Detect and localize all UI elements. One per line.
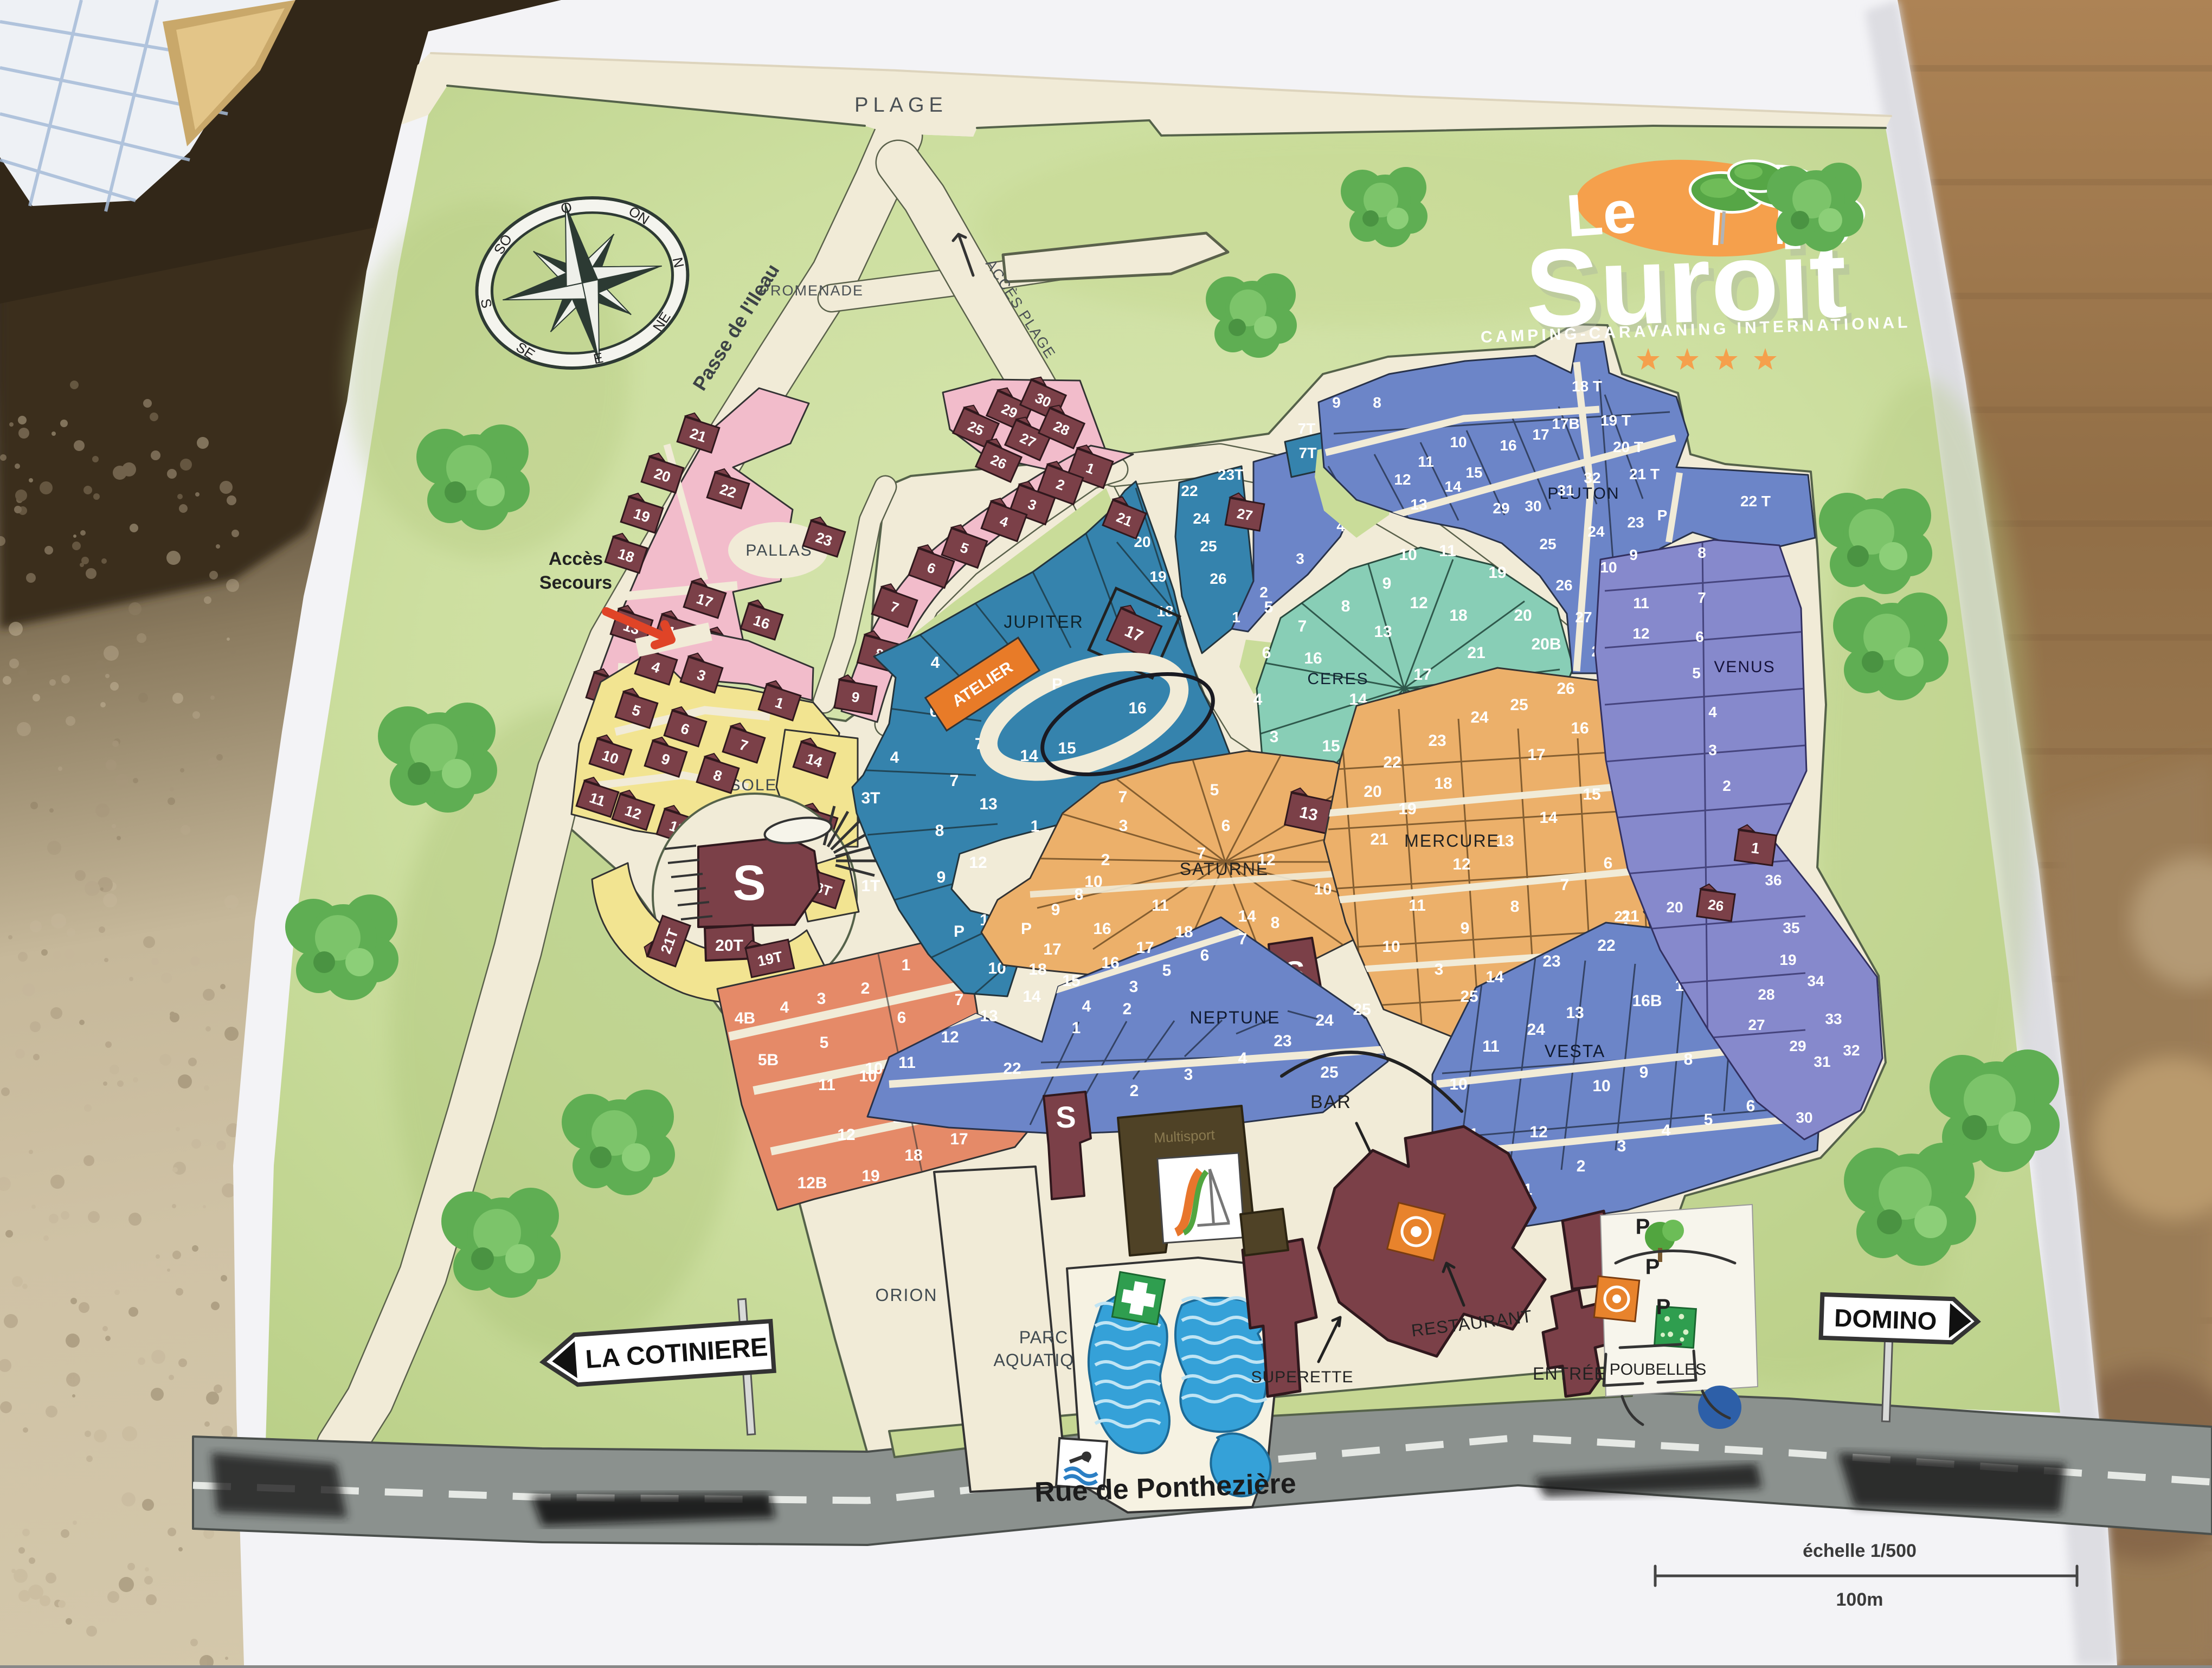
svg-text:4: 4 <box>890 749 899 767</box>
svg-text:24: 24 <box>1315 1012 1334 1029</box>
svg-text:35: 35 <box>1783 919 1799 936</box>
svg-text:5B: 5B <box>758 1051 779 1069</box>
svg-text:3T: 3T <box>861 789 880 807</box>
svg-text:3: 3 <box>1296 550 1304 567</box>
svg-text:22: 22 <box>1181 482 1198 499</box>
svg-text:21 T: 21 T <box>1629 466 1660 482</box>
svg-text:16: 16 <box>1101 954 1119 972</box>
svg-text:9: 9 <box>1382 575 1392 593</box>
svg-text:11: 11 <box>898 1054 916 1072</box>
svg-text:13: 13 <box>980 1007 998 1025</box>
svg-text:10: 10 <box>1450 434 1467 450</box>
svg-text:31: 31 <box>1557 482 1574 499</box>
svg-text:P: P <box>1645 1255 1660 1279</box>
svg-text:23: 23 <box>1274 1032 1291 1050</box>
svg-text:Multisport: Multisport <box>1153 1126 1216 1146</box>
svg-text:31: 31 <box>1814 1053 1830 1070</box>
svg-text:P: P <box>954 923 964 941</box>
svg-text:4: 4 <box>1708 704 1717 720</box>
svg-text:1: 1 <box>902 956 911 974</box>
svg-text:8: 8 <box>1075 886 1084 904</box>
svg-text:34: 34 <box>1807 973 1824 989</box>
svg-text:7: 7 <box>1118 788 1128 806</box>
svg-text:10: 10 <box>1382 938 1400 956</box>
svg-text:10: 10 <box>1449 1075 1467 1093</box>
svg-text:27: 27 <box>1575 609 1592 626</box>
svg-text:14: 14 <box>1238 907 1256 925</box>
svg-text:S: S <box>732 855 766 911</box>
svg-text:19: 19 <box>1398 800 1416 818</box>
svg-text:10: 10 <box>1399 546 1417 564</box>
svg-text:12: 12 <box>1632 625 1649 642</box>
svg-text:9: 9 <box>937 868 946 886</box>
svg-text:BAR: BAR <box>1310 1092 1352 1112</box>
svg-text:15: 15 <box>1058 739 1076 757</box>
svg-text:19: 19 <box>1149 568 1166 585</box>
svg-text:18: 18 <box>904 1147 922 1164</box>
svg-text:échelle 1/500: échelle 1/500 <box>1803 1541 1917 1561</box>
svg-text:VENUS: VENUS <box>1714 658 1775 676</box>
svg-text:DOMINO: DOMINO <box>1834 1304 1937 1336</box>
svg-text:7T: 7T <box>1298 420 1316 437</box>
svg-text:20 T: 20 T <box>1613 439 1643 455</box>
svg-text:1: 1 <box>1072 1019 1081 1037</box>
svg-text:20T: 20T <box>715 937 743 955</box>
svg-text:16B: 16B <box>1632 992 1662 1010</box>
svg-text:13: 13 <box>1374 623 1392 641</box>
svg-text:3: 3 <box>1119 817 1128 835</box>
svg-text:23: 23 <box>1627 514 1644 531</box>
svg-text:POUBELLES: POUBELLES <box>1610 1361 1706 1379</box>
svg-text:24: 24 <box>1587 523 1605 540</box>
svg-text:6: 6 <box>1604 854 1613 872</box>
svg-text:24: 24 <box>1527 1021 1545 1039</box>
svg-text:CERES: CERES <box>1307 670 1368 688</box>
svg-text:10: 10 <box>1600 559 1617 576</box>
svg-text:12: 12 <box>941 1028 959 1046</box>
svg-text:8: 8 <box>935 822 944 840</box>
svg-text:12: 12 <box>837 1126 855 1144</box>
svg-text:14: 14 <box>1539 809 1558 827</box>
svg-text:15: 15 <box>1465 464 1482 481</box>
svg-text:9: 9 <box>1332 394 1341 411</box>
svg-text:10: 10 <box>1084 873 1102 891</box>
svg-text:21: 21 <box>1370 830 1388 848</box>
svg-text:11: 11 <box>1439 542 1456 560</box>
svg-text:13: 13 <box>1566 1004 1584 1022</box>
svg-text:4: 4 <box>1662 1122 1671 1139</box>
svg-text:26: 26 <box>1707 896 1725 914</box>
svg-text:12B: 12B <box>797 1174 827 1192</box>
svg-text:Accès: Accès <box>549 549 603 569</box>
svg-text:19: 19 <box>1488 564 1506 582</box>
svg-text:7: 7 <box>1697 589 1706 606</box>
svg-text:ORION: ORION <box>876 1285 938 1305</box>
svg-text:20B: 20B <box>1531 635 1561 653</box>
svg-text:10: 10 <box>1592 1077 1610 1095</box>
svg-text:17: 17 <box>1532 426 1549 443</box>
svg-text:6: 6 <box>1262 644 1271 662</box>
svg-text:5: 5 <box>1210 781 1219 799</box>
svg-text:PALLAS: PALLAS <box>745 542 812 559</box>
svg-text:NEPTUNE: NEPTUNE <box>1190 1008 1281 1027</box>
svg-text:9: 9 <box>1629 546 1638 563</box>
svg-text:29: 29 <box>1789 1038 1806 1054</box>
svg-text:26: 26 <box>1210 570 1226 587</box>
svg-text:16: 16 <box>1571 719 1589 737</box>
svg-text:11: 11 <box>1409 897 1426 914</box>
svg-text:13: 13 <box>979 795 997 813</box>
svg-text:6: 6 <box>897 1009 906 1027</box>
svg-text:P: P <box>1636 1215 1650 1239</box>
svg-text:25: 25 <box>1510 696 1528 714</box>
svg-text:12: 12 <box>1452 855 1470 873</box>
svg-text:7: 7 <box>1560 876 1570 894</box>
svg-text:4: 4 <box>1238 1049 1248 1067</box>
svg-text:17: 17 <box>1527 746 1545 764</box>
svg-text:5: 5 <box>1692 665 1701 681</box>
svg-text:24: 24 <box>1470 709 1489 726</box>
svg-text:8: 8 <box>1684 1051 1693 1068</box>
svg-text:15: 15 <box>1322 737 1340 755</box>
svg-text:4B: 4B <box>735 1009 755 1027</box>
svg-text:32: 32 <box>1584 469 1600 486</box>
svg-text:3: 3 <box>1184 1066 1193 1084</box>
svg-text:2: 2 <box>1577 1157 1586 1175</box>
svg-text:100m: 100m <box>1836 1589 1883 1610</box>
svg-text:18: 18 <box>1434 775 1452 793</box>
svg-text:10: 10 <box>1314 880 1332 898</box>
svg-text:8: 8 <box>1271 914 1280 932</box>
svg-text:16: 16 <box>1128 699 1146 717</box>
svg-text:29: 29 <box>1493 500 1509 517</box>
svg-text:ENTRÉE: ENTRÉE <box>1533 1364 1606 1383</box>
svg-text:17: 17 <box>1043 941 1061 958</box>
svg-text:1: 1 <box>1232 609 1240 626</box>
svg-text:20: 20 <box>1364 783 1381 801</box>
svg-text:26: 26 <box>1557 680 1574 698</box>
svg-text:22: 22 <box>1003 1060 1021 1078</box>
svg-text:12: 12 <box>1529 1123 1547 1141</box>
svg-text:17: 17 <box>950 1130 968 1148</box>
svg-text:7T: 7T <box>1299 445 1317 461</box>
svg-text:5: 5 <box>1162 962 1172 980</box>
svg-text:14: 14 <box>1023 988 1041 1006</box>
svg-text:20: 20 <box>1514 607 1532 624</box>
svg-text:2: 2 <box>861 980 870 997</box>
svg-text:8: 8 <box>1341 597 1351 615</box>
svg-text:15: 15 <box>1062 972 1080 990</box>
svg-text:7: 7 <box>1238 930 1248 948</box>
svg-text:12: 12 <box>1257 851 1275 869</box>
svg-text:5: 5 <box>1264 598 1274 616</box>
svg-text:16: 16 <box>1500 437 1516 454</box>
svg-text:1T: 1T <box>861 877 880 895</box>
svg-text:4: 4 <box>1253 691 1263 709</box>
svg-text:27: 27 <box>1236 505 1254 524</box>
svg-text:P: P <box>1656 1295 1671 1319</box>
svg-text:PLAGE: PLAGE <box>854 94 948 117</box>
svg-text:24: 24 <box>1193 510 1210 527</box>
svg-text:7: 7 <box>955 991 964 1009</box>
svg-text:19: 19 <box>861 1167 879 1185</box>
svg-text:22: 22 <box>1597 937 1615 955</box>
svg-text:11: 11 <box>1152 897 1169 914</box>
svg-text:4: 4 <box>1082 997 1091 1015</box>
svg-text:S: S <box>1056 1100 1076 1134</box>
svg-text:P: P <box>1657 507 1668 524</box>
svg-text:3: 3 <box>1435 961 1444 978</box>
svg-text:8: 8 <box>1373 394 1381 411</box>
svg-text:18 T: 18 T <box>1572 378 1602 395</box>
svg-text:PARC: PARC <box>1019 1328 1069 1347</box>
svg-text:P: P <box>1052 675 1063 693</box>
svg-text:5: 5 <box>1704 1111 1713 1129</box>
svg-text:6: 6 <box>1695 628 1704 645</box>
svg-text:VESTA: VESTA <box>1545 1041 1606 1061</box>
svg-text:11: 11 <box>1633 595 1649 611</box>
svg-text:6: 6 <box>1221 817 1231 835</box>
svg-text:3: 3 <box>1270 728 1279 746</box>
svg-text:25: 25 <box>1353 1001 1371 1019</box>
svg-text:P: P <box>1021 920 1032 938</box>
svg-text:13: 13 <box>1496 832 1514 850</box>
svg-text:28: 28 <box>1758 986 1774 1003</box>
svg-text:6: 6 <box>1200 946 1210 964</box>
svg-text:23: 23 <box>1428 732 1446 750</box>
svg-text:25: 25 <box>1200 538 1217 555</box>
svg-text:15: 15 <box>1583 785 1600 803</box>
svg-text:9: 9 <box>1051 901 1060 919</box>
svg-text:10: 10 <box>859 1067 877 1085</box>
svg-text:18: 18 <box>1449 607 1467 624</box>
svg-text:8: 8 <box>1510 898 1520 916</box>
svg-text:23T: 23T <box>1218 466 1244 483</box>
svg-text:14: 14 <box>1444 478 1462 495</box>
svg-text:25: 25 <box>1539 536 1556 552</box>
svg-text:2: 2 <box>1101 851 1110 869</box>
svg-text:11: 11 <box>818 1076 835 1094</box>
svg-text:25: 25 <box>1320 1064 1338 1081</box>
svg-text:12: 12 <box>1410 594 1427 612</box>
svg-text:17: 17 <box>1136 939 1154 957</box>
svg-text:SATURNE: SATURNE <box>1180 859 1269 879</box>
svg-text:3: 3 <box>1617 1137 1626 1155</box>
svg-text:16: 16 <box>1093 920 1111 938</box>
svg-text:4: 4 <box>780 999 789 1016</box>
svg-text:23: 23 <box>1542 952 1560 970</box>
svg-text:2: 2 <box>1722 777 1731 794</box>
svg-text:17B: 17B <box>1552 415 1579 432</box>
svg-text:21: 21 <box>1614 908 1631 925</box>
svg-text:2: 2 <box>1130 1082 1139 1100</box>
svg-text:19: 19 <box>1779 951 1796 968</box>
svg-text:3: 3 <box>1708 742 1717 758</box>
svg-text:33: 33 <box>1825 1010 1842 1027</box>
svg-text:5: 5 <box>820 1034 829 1052</box>
svg-text:27: 27 <box>1748 1016 1765 1033</box>
svg-text:SUPERETTE: SUPERETTE <box>1251 1368 1353 1386</box>
svg-text:4: 4 <box>931 654 940 672</box>
svg-text:21: 21 <box>1467 644 1485 662</box>
svg-text:MERCURE: MERCURE <box>1404 831 1500 851</box>
svg-text:12: 12 <box>969 854 987 872</box>
svg-text:9: 9 <box>1639 1064 1649 1081</box>
svg-text:18: 18 <box>1028 961 1046 978</box>
svg-text:16: 16 <box>1304 649 1322 667</box>
svg-text:26: 26 <box>1555 577 1572 594</box>
svg-text:32: 32 <box>1843 1042 1860 1059</box>
svg-text:11: 11 <box>1418 453 1434 470</box>
svg-text:17: 17 <box>1413 666 1431 684</box>
svg-text:6: 6 <box>1746 1097 1756 1115</box>
svg-text:Secours: Secours <box>539 572 612 593</box>
svg-text:12: 12 <box>1394 471 1411 488</box>
svg-text:13: 13 <box>1298 803 1320 825</box>
svg-text:JUPITER: JUPITER <box>1004 612 1083 632</box>
svg-text:14: 14 <box>1486 968 1504 986</box>
svg-text:18: 18 <box>1175 923 1193 941</box>
svg-text:19 T: 19 T <box>1600 412 1631 429</box>
svg-text:3: 3 <box>1129 978 1139 996</box>
svg-text:8: 8 <box>1697 544 1706 561</box>
svg-text:11: 11 <box>1482 1038 1500 1055</box>
svg-text:30: 30 <box>1796 1109 1812 1126</box>
svg-text:9: 9 <box>1461 919 1470 937</box>
svg-text:22: 22 <box>1383 754 1401 771</box>
svg-text:7: 7 <box>1298 617 1307 635</box>
svg-text:30: 30 <box>1525 498 1541 514</box>
svg-text:25: 25 <box>1460 988 1478 1006</box>
svg-text:2: 2 <box>1123 1000 1132 1018</box>
svg-text:7: 7 <box>950 772 959 790</box>
svg-text:13: 13 <box>1410 496 1427 513</box>
svg-text:1: 1 <box>1031 817 1040 835</box>
svg-text:7: 7 <box>1197 845 1206 862</box>
svg-text:22 T: 22 T <box>1740 493 1771 510</box>
svg-text:36: 36 <box>1765 872 1782 888</box>
svg-text:3: 3 <box>817 990 826 1008</box>
svg-text:20: 20 <box>1666 899 1683 916</box>
